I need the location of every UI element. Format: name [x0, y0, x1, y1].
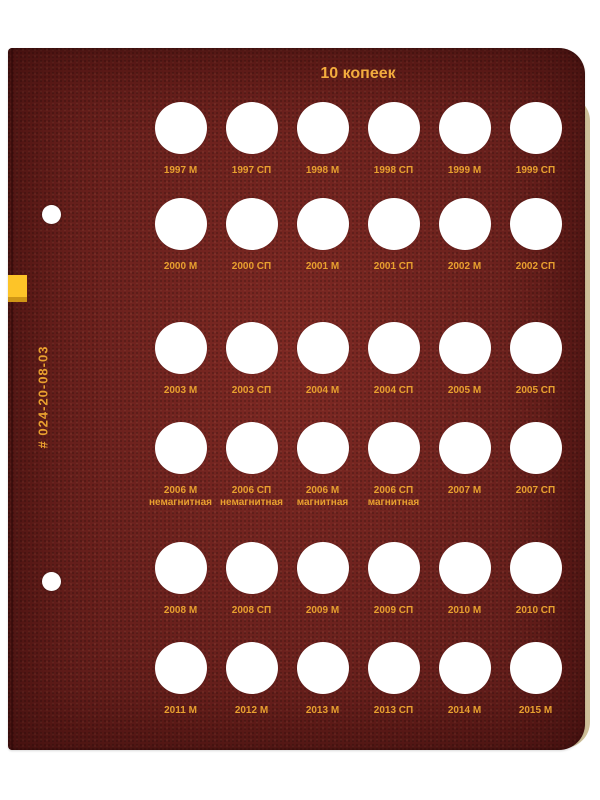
- coin-slot: [226, 422, 278, 474]
- coin-cell: 2011 М: [145, 642, 216, 717]
- coin-slot: [368, 198, 420, 250]
- coin-label: 2009 М: [306, 605, 339, 617]
- coin-label: 1999 М: [448, 165, 481, 177]
- coin-label: 2006 СП: [232, 485, 271, 497]
- coin-label: 1997 СП: [232, 165, 271, 177]
- coin-sublabel: магнитная: [368, 497, 420, 509]
- coin-slot: [439, 322, 491, 374]
- coin-slot: [155, 322, 207, 374]
- coin-slot: [297, 198, 349, 250]
- coin-cell: 2003 М: [145, 322, 216, 397]
- coin-slot: [155, 102, 207, 154]
- coin-label: 2006 СП: [374, 485, 413, 497]
- coin-slot: [297, 322, 349, 374]
- coin-label: 2003 СП: [232, 385, 271, 397]
- coin-slot: [368, 322, 420, 374]
- coin-cell: 2009 М: [287, 542, 358, 617]
- coin-cell: 2013 М: [287, 642, 358, 717]
- coin-label: 2014 М: [448, 705, 481, 717]
- coin-cell: 2007 М: [429, 422, 500, 509]
- coin-label: 2010 М: [448, 605, 481, 617]
- coin-label: 2007 М: [448, 485, 481, 497]
- coin-label: 2006 М: [306, 485, 339, 497]
- coin-label: 2001 М: [306, 261, 339, 273]
- coin-label: 2005 М: [448, 385, 481, 397]
- coin-slot: [155, 542, 207, 594]
- coin-row: 1997 М 1997 СП 1998 М 1998 СП 1999 М 199…: [145, 102, 571, 177]
- coin-cell: 2006 СП магнитная: [358, 422, 429, 509]
- coin-slot: [226, 198, 278, 250]
- coin-cell: 2004 СП: [358, 322, 429, 397]
- coin-label: 2013 СП: [374, 705, 413, 717]
- coin-row: 2006 М немагнитная 2006 СП немагнитная 2…: [145, 422, 571, 509]
- coin-cell: 2006 М немагнитная: [145, 422, 216, 509]
- coin-slot: [510, 198, 562, 250]
- coin-cell: 2013 СП: [358, 642, 429, 717]
- coin-grid: 1997 М 1997 СП 1998 М 1998 СП 1999 М 199…: [8, 48, 585, 750]
- coin-sublabel: магнитная: [297, 497, 349, 509]
- coin-label: 2004 М: [306, 385, 339, 397]
- coin-label: 2015 М: [519, 705, 552, 717]
- album-page: # 024-20-08-03 10 копеек 1997 М 1997 СП …: [8, 48, 585, 750]
- coin-label: 2005 СП: [516, 385, 555, 397]
- coin-slot: [226, 542, 278, 594]
- coin-cell: 2012 М: [216, 642, 287, 717]
- photo-background: # 024-20-08-03 10 копеек 1997 М 1997 СП …: [0, 0, 600, 800]
- coin-label: 2004 СП: [374, 385, 413, 397]
- coin-cell: 2000 СП: [216, 198, 287, 273]
- coin-label: 2002 СП: [516, 261, 555, 273]
- coin-cell: 1997 СП: [216, 102, 287, 177]
- coin-slot: [368, 422, 420, 474]
- coin-slot: [368, 542, 420, 594]
- coin-row: 2008 М 2008 СП 2009 М 2009 СП 2010 М 201…: [145, 542, 571, 617]
- coin-label: 2001 СП: [374, 261, 413, 273]
- coin-label: 2011 М: [164, 705, 197, 717]
- coin-slot: [297, 422, 349, 474]
- coin-slot: [368, 642, 420, 694]
- coin-row: 2000 М 2000 СП 2001 М 2001 СП 2002 М 200…: [145, 198, 571, 273]
- coin-cell: 2000 М: [145, 198, 216, 273]
- coin-slot: [297, 542, 349, 594]
- coin-slot: [439, 198, 491, 250]
- coin-label: 2012 М: [235, 705, 268, 717]
- coin-slot: [439, 422, 491, 474]
- coin-cell: 2008 М: [145, 542, 216, 617]
- coin-slot: [439, 642, 491, 694]
- coin-slot: [439, 102, 491, 154]
- coin-slot: [226, 642, 278, 694]
- coin-cell: 2008 СП: [216, 542, 287, 617]
- coin-label: 2008 СП: [232, 605, 271, 617]
- coin-cell: 1998 М: [287, 102, 358, 177]
- coin-cell: 2009 СП: [358, 542, 429, 617]
- coin-label: 2002 М: [448, 261, 481, 273]
- coin-slot: [226, 322, 278, 374]
- coin-cell: 2005 М: [429, 322, 500, 397]
- coin-slot: [297, 102, 349, 154]
- coin-cell: 2005 СП: [500, 322, 571, 397]
- coin-sublabel: немагнитная: [220, 497, 283, 509]
- coin-sublabel: немагнитная: [149, 497, 212, 509]
- coin-label: 2003 М: [164, 385, 197, 397]
- coin-cell: 2015 М: [500, 642, 571, 717]
- coin-slot: [226, 102, 278, 154]
- coin-slot: [155, 198, 207, 250]
- coin-slot: [510, 642, 562, 694]
- coin-cell: 2001 СП: [358, 198, 429, 273]
- coin-slot: [510, 422, 562, 474]
- coin-label: 2006 М: [164, 485, 197, 497]
- coin-cell: 2004 М: [287, 322, 358, 397]
- coin-label: 2000 СП: [232, 261, 271, 273]
- coin-label: 2010 СП: [516, 605, 555, 617]
- coin-cell: 2003 СП: [216, 322, 287, 397]
- coin-cell: 2002 СП: [500, 198, 571, 273]
- coin-slot: [510, 102, 562, 154]
- coin-slot: [510, 322, 562, 374]
- coin-label: 2013 М: [306, 705, 339, 717]
- coin-label: 2009 СП: [374, 605, 413, 617]
- coin-label: 2000 М: [164, 261, 197, 273]
- coin-cell: 2006 М магнитная: [287, 422, 358, 509]
- coin-label: 2008 М: [164, 605, 197, 617]
- coin-cell: 1999 СП: [500, 102, 571, 177]
- coin-slot: [155, 422, 207, 474]
- coin-cell: 1999 М: [429, 102, 500, 177]
- coin-cell: 2010 М: [429, 542, 500, 617]
- coin-label: 2007 СП: [516, 485, 555, 497]
- coin-label: 1997 М: [164, 165, 197, 177]
- coin-cell: 2001 М: [287, 198, 358, 273]
- coin-slot: [510, 542, 562, 594]
- coin-label: 1998 М: [306, 165, 339, 177]
- coin-row: 2003 М 2003 СП 2004 М 2004 СП 2005 М 200…: [145, 322, 571, 397]
- coin-cell: 1998 СП: [358, 102, 429, 177]
- coin-cell: 1997 М: [145, 102, 216, 177]
- coin-label: 1998 СП: [374, 165, 413, 177]
- coin-cell: 2007 СП: [500, 422, 571, 509]
- coin-slot: [297, 642, 349, 694]
- coin-slot: [155, 642, 207, 694]
- coin-slot: [439, 542, 491, 594]
- coin-label: 1999 СП: [516, 165, 555, 177]
- coin-cell: 2014 М: [429, 642, 500, 717]
- coin-cell: 2010 СП: [500, 542, 571, 617]
- coin-cell: 2006 СП немагнитная: [216, 422, 287, 509]
- coin-slot: [368, 102, 420, 154]
- coin-row: 2011 М 2012 М 2013 М 2013 СП 2014 М 2015…: [145, 642, 571, 717]
- coin-cell: 2002 М: [429, 198, 500, 273]
